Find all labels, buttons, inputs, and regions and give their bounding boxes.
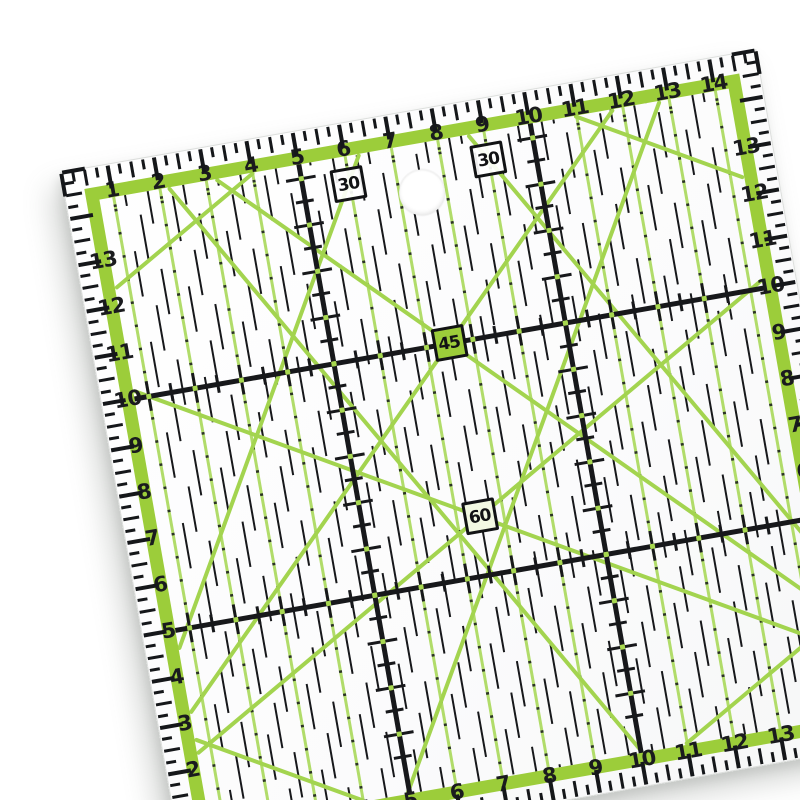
edge-tick <box>685 63 691 79</box>
edge-tick <box>775 223 785 228</box>
edge-tick <box>795 338 800 343</box>
edge-tick <box>592 80 598 96</box>
edge-tick <box>141 621 151 626</box>
grid-intersection-dot <box>238 377 244 383</box>
grid-intersection-dot <box>363 546 369 552</box>
grid-intersection-dot <box>510 567 516 573</box>
grid-intersection-dot <box>418 584 424 590</box>
edge-tick <box>511 94 516 104</box>
edge-tick <box>150 667 160 672</box>
edge-tick <box>105 412 115 417</box>
edge-tick <box>187 151 192 161</box>
grid-intersection-dot <box>314 268 320 274</box>
edge-tick <box>770 752 775 762</box>
edge-tick <box>139 608 155 614</box>
grid-intersection-dot <box>379 638 385 644</box>
edge-tick <box>724 760 729 770</box>
grid-intersection-dot <box>306 222 312 228</box>
edge-tick <box>534 90 539 100</box>
edge-tick <box>164 747 180 753</box>
edge-tick <box>775 257 791 263</box>
photo-stage: 1234567891011121314123456789101112131413… <box>0 0 800 800</box>
edge-tick <box>573 781 579 797</box>
grid-intersection-dot <box>232 616 238 622</box>
edge-tick <box>176 153 182 169</box>
grid-intersection-dot <box>388 685 394 691</box>
edge-tick <box>131 562 147 568</box>
edge-tick <box>754 51 762 74</box>
grid-intersection-dot <box>347 453 353 459</box>
edge-tick <box>74 238 90 244</box>
edge-tick <box>84 297 94 302</box>
edge-tick <box>222 145 228 161</box>
grid-intersection-dot <box>546 227 552 233</box>
edge-tick <box>627 74 632 84</box>
edge-tick <box>750 84 760 89</box>
grid-intersection-dot <box>355 499 361 505</box>
edge-tick <box>755 107 765 112</box>
edge-tick <box>673 65 678 75</box>
edge-tick <box>164 155 169 165</box>
edge-tick <box>148 654 164 660</box>
edge-tick <box>619 773 625 789</box>
edge-tick <box>125 528 135 533</box>
edge-tick <box>453 104 459 120</box>
edge-tick <box>665 764 671 780</box>
edge-tick <box>791 315 800 320</box>
grid-intersection-dot <box>570 366 576 372</box>
grid-intersection-dot <box>578 412 584 418</box>
grid-intersection-dot <box>325 600 331 606</box>
edge-tick <box>608 781 613 791</box>
grid-intersection-dot <box>537 181 543 187</box>
edge-tick <box>156 701 172 707</box>
edge-tick <box>326 127 331 137</box>
edge-tick <box>631 776 636 786</box>
edge-tick <box>526 789 532 800</box>
grid-intersection-dot <box>330 361 336 367</box>
edge-tick <box>771 200 781 205</box>
edge-tick <box>121 505 131 510</box>
grid-intersection-dot <box>603 551 609 557</box>
edge-tick <box>314 129 320 145</box>
edge-tick <box>268 137 274 153</box>
edge-tick <box>129 161 135 177</box>
edge-tick <box>562 789 567 799</box>
edge-tick <box>743 53 748 63</box>
edge-tick <box>787 292 797 297</box>
edge-tick <box>154 690 164 695</box>
edge-tick <box>719 57 724 67</box>
edge-tick <box>539 793 544 800</box>
edge-tick <box>557 86 562 96</box>
grid-intersection-dot <box>562 320 568 326</box>
edge-tick <box>303 131 308 141</box>
edge-tick <box>696 61 701 71</box>
edge-tick <box>95 167 100 177</box>
grid-intersection-dot <box>145 393 151 399</box>
edge-tick <box>767 211 783 217</box>
grid-intersection-dot <box>556 559 562 565</box>
edge-tick <box>488 98 493 108</box>
grid-intersection-dot <box>371 592 377 598</box>
edge-tick <box>650 69 655 79</box>
edge-tick <box>97 366 107 371</box>
edge-tick <box>162 736 172 741</box>
edge-tick <box>500 96 506 112</box>
edge-tick <box>783 304 799 310</box>
edge-tick <box>743 72 759 78</box>
edge-tick <box>72 227 82 232</box>
edge-tick <box>604 78 609 88</box>
edge-tick <box>80 274 90 279</box>
edge-tick <box>123 516 139 522</box>
grid-intersection-dot <box>595 505 601 511</box>
edge-tick <box>109 436 119 441</box>
grid-intersection-dot <box>284 369 290 375</box>
angle-label-box: 30 <box>329 165 367 203</box>
edge-tick <box>257 139 262 149</box>
edge-tick <box>141 159 146 169</box>
edge-tick <box>763 153 773 158</box>
edge-tick <box>779 246 789 251</box>
edge-tick <box>115 469 131 475</box>
quilting-ruler: 1234567891011121314123456789101112131413… <box>60 49 800 800</box>
grid-intersection-dot <box>186 625 192 631</box>
edge-tick <box>90 330 106 336</box>
edge-tick <box>442 106 447 116</box>
edge-tick <box>678 768 683 778</box>
edge-tick <box>107 423 123 429</box>
grid-intersection-dot <box>695 535 701 541</box>
edge-tick <box>137 598 147 603</box>
grid-intersection-dot <box>322 314 328 320</box>
edge-tick <box>546 88 552 104</box>
edge-tick <box>751 119 767 125</box>
edge-tick <box>68 204 78 209</box>
edge-tick <box>407 112 413 128</box>
edge-tick <box>465 102 470 112</box>
edge-tick <box>711 756 717 772</box>
grid-intersection-dot <box>608 312 614 318</box>
edge-tick <box>759 130 769 135</box>
grid-intersection-dot <box>516 328 522 334</box>
edge-tick <box>88 320 98 325</box>
edge-tick <box>210 147 215 157</box>
angle-label-box: 30 <box>469 140 507 178</box>
edge-tick <box>280 135 285 145</box>
edge-tick <box>101 389 111 394</box>
edge-tick <box>759 165 775 171</box>
edge-tick <box>233 143 238 153</box>
edge-tick <box>783 269 793 274</box>
edge-tick <box>638 72 644 88</box>
grid-intersection-dot <box>701 295 707 301</box>
grid-intersection-dot <box>469 336 475 342</box>
edge-tick <box>361 120 367 136</box>
edge-tick <box>349 123 354 133</box>
edge-tick <box>372 118 377 128</box>
edge-tick <box>118 163 123 173</box>
grid-intersection-dot <box>529 135 535 141</box>
grid-intersection-dot <box>339 407 345 413</box>
grid-intersection-dot <box>554 273 560 279</box>
edge-tick <box>133 574 143 579</box>
grid-intersection-dot <box>377 352 383 358</box>
grid-intersection-dot <box>423 344 429 350</box>
edge-tick <box>92 343 102 348</box>
grid-intersection-dot <box>611 597 617 603</box>
grid-intersection-dot <box>298 175 304 181</box>
edge-tick <box>64 181 74 186</box>
grid-intersection-dot <box>742 527 748 533</box>
edge-tick <box>419 110 424 120</box>
angle-label-box: 60 <box>461 497 499 535</box>
edge-tick <box>758 748 764 764</box>
edge-tick <box>585 785 590 795</box>
edge-tick <box>581 82 586 92</box>
edge-tick <box>146 644 156 649</box>
edge-tick <box>76 250 86 255</box>
edge-tick <box>655 772 660 782</box>
edge-tick <box>82 284 98 290</box>
grid-intersection-dot <box>655 303 661 309</box>
grid-intersection-dot <box>586 459 592 465</box>
edge-tick <box>99 377 115 383</box>
edge-tick <box>747 756 752 766</box>
edge-tick <box>395 114 400 124</box>
grid-intersection-dot <box>619 644 625 650</box>
edge-tick <box>158 713 168 718</box>
edge-tick <box>701 764 706 774</box>
grid-intersection-dot <box>396 731 402 737</box>
angle-label-box: 45 <box>430 324 468 362</box>
edge-tick <box>166 760 176 765</box>
edge-tick <box>170 783 180 788</box>
edge-tick <box>83 169 89 185</box>
edge-tick <box>731 55 737 71</box>
grid-intersection-dot <box>279 608 285 614</box>
grid-intersection-dot <box>464 576 470 582</box>
edge-tick <box>791 350 800 356</box>
edge-tick <box>66 192 82 198</box>
edge-tick <box>129 551 139 556</box>
edge-tick <box>767 176 777 181</box>
edge-tick <box>793 748 798 758</box>
edge-tick <box>113 459 123 464</box>
grid-intersection-dot <box>649 543 655 549</box>
grid-intersection-dot <box>192 385 198 391</box>
edge-tick <box>172 793 188 799</box>
grid-intersection-dot <box>627 690 633 696</box>
edge-tick <box>117 482 127 487</box>
